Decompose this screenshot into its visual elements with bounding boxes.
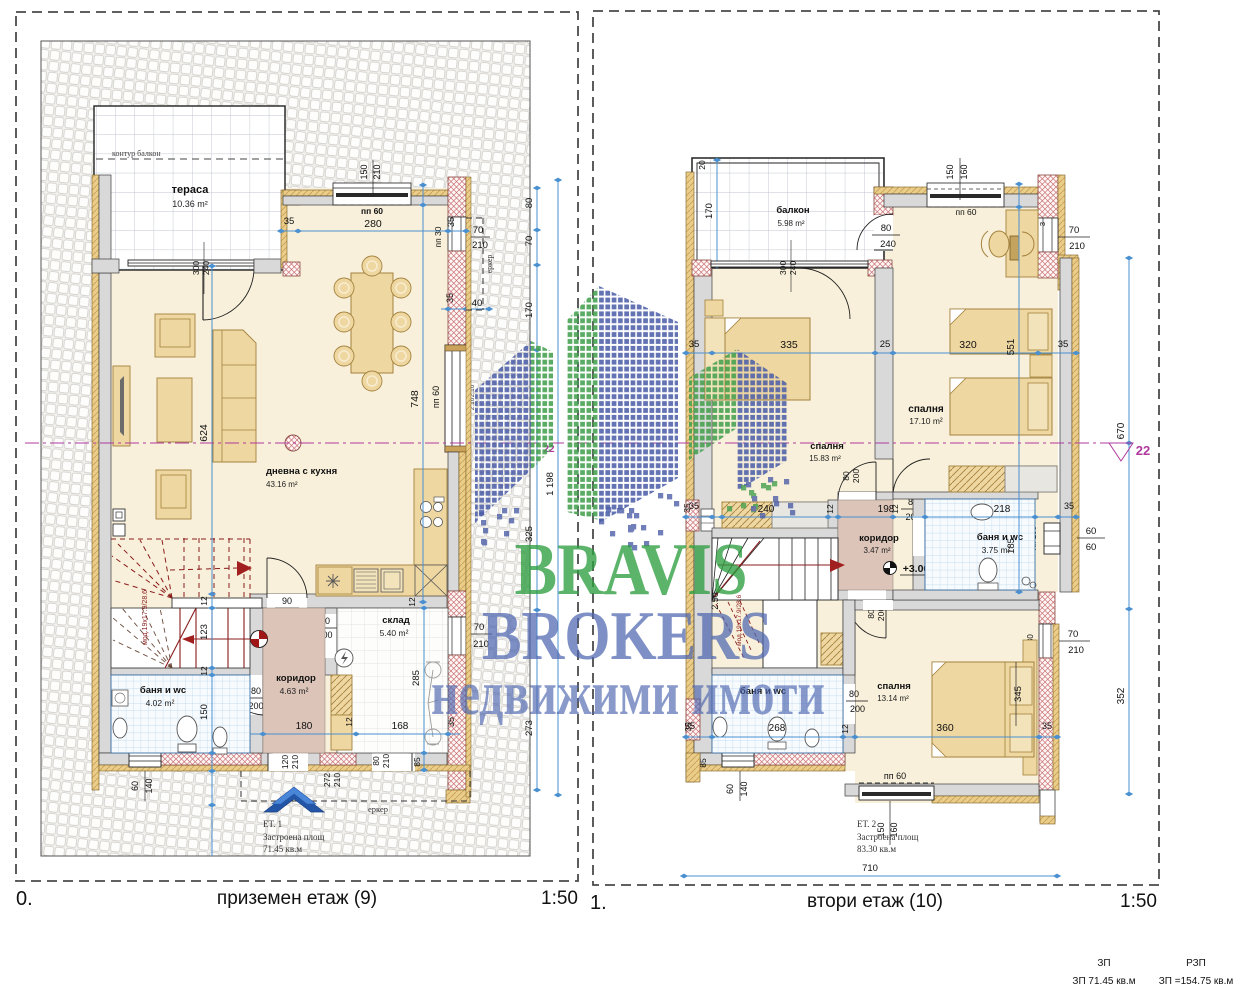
svg-text:40: 40	[472, 298, 483, 309]
svg-text:пп 60: пп 60	[431, 386, 441, 408]
svg-text:360: 360	[936, 722, 954, 734]
svg-text:300: 300	[191, 261, 201, 275]
svg-text:60: 60	[130, 781, 140, 791]
svg-text:80: 80	[251, 686, 261, 696]
svg-text:10.36 m²: 10.36 m²	[172, 199, 208, 209]
svg-text:710: 710	[862, 863, 878, 874]
svg-text:80: 80	[866, 609, 876, 619]
svg-text:352: 352	[1116, 687, 1127, 704]
svg-text:90: 90	[282, 596, 292, 606]
svg-text:12: 12	[199, 596, 209, 606]
svg-text:втори етаж (10): втори етаж (10)	[807, 891, 943, 912]
svg-text:200: 200	[248, 701, 263, 711]
svg-text:12: 12	[344, 717, 354, 727]
svg-text:240: 240	[201, 261, 211, 275]
svg-text:200: 200	[851, 469, 861, 483]
svg-text:70: 70	[524, 236, 535, 247]
svg-text:35: 35	[284, 216, 295, 227]
svg-text:300: 300	[778, 261, 788, 275]
svg-text:мод.19х17.9/28.6: мод.19х17.9/28.6	[142, 590, 149, 645]
svg-text:ЕТ. 1: ЕТ. 1	[263, 819, 282, 829]
svg-text:пп 30: пп 30	[433, 226, 443, 247]
svg-text:280: 280	[364, 218, 382, 230]
svg-text:22: 22	[1136, 443, 1150, 458]
svg-text:пп 60: пп 60	[361, 206, 383, 216]
svg-text:345: 345	[1013, 686, 1024, 702]
svg-text:210: 210	[372, 164, 382, 179]
svg-text:дневна с кухня: дневна с кухня	[266, 466, 337, 477]
svg-text:15.83 m²: 15.83 m²	[809, 454, 841, 463]
svg-text:3.47 m²: 3.47 m²	[863, 546, 890, 555]
svg-text:210: 210	[381, 754, 391, 768]
svg-text:недвижими имоти: недвижими имоти	[431, 660, 825, 728]
svg-text:80: 80	[881, 223, 892, 234]
svg-text:180: 180	[296, 721, 313, 732]
svg-text:210: 210	[1069, 241, 1085, 252]
svg-text:коридор: коридор	[859, 533, 899, 544]
svg-text:60: 60	[1086, 526, 1097, 537]
svg-text:35: 35	[689, 501, 699, 511]
svg-text:70: 70	[473, 225, 484, 236]
svg-text:1:50: 1:50	[1120, 891, 1157, 912]
svg-text:ЗП 71.45 кв.м: ЗП 71.45 кв.м	[1072, 976, 1135, 987]
svg-text:240: 240	[788, 261, 798, 275]
svg-text:1.: 1.	[590, 892, 607, 914]
svg-text:35: 35	[1064, 501, 1074, 511]
svg-text:еркер: еркер	[368, 804, 388, 814]
svg-text:85: 85	[412, 757, 422, 767]
svg-text:Застроена площ: Застроена площ	[263, 832, 325, 842]
svg-text:пп 60: пп 60	[955, 207, 976, 217]
svg-text:35: 35	[1058, 339, 1069, 350]
svg-text:35: 35	[689, 339, 700, 350]
svg-text:коридор: коридор	[276, 673, 316, 684]
svg-text:1:50: 1:50	[541, 888, 578, 909]
svg-text:1 198: 1 198	[545, 472, 556, 496]
svg-text:335: 335	[780, 339, 798, 351]
svg-text:150: 150	[945, 164, 955, 179]
svg-text:185: 185	[1006, 538, 1017, 554]
svg-text:748: 748	[409, 390, 421, 408]
svg-text:ЗП: ЗП	[1097, 958, 1110, 969]
svg-text:70: 70	[1068, 629, 1079, 640]
svg-text:12: 12	[840, 724, 850, 734]
svg-text:60: 60	[1086, 542, 1097, 553]
svg-text:60: 60	[725, 784, 735, 794]
svg-text:140: 140	[144, 778, 154, 793]
svg-text:12: 12	[890, 504, 900, 514]
svg-text:218: 218	[994, 504, 1011, 515]
svg-text:670: 670	[1116, 422, 1127, 439]
svg-text:80: 80	[371, 756, 381, 766]
svg-text:168: 168	[392, 721, 409, 732]
svg-text:170: 170	[704, 203, 715, 219]
svg-text:еркер: еркер	[485, 255, 494, 274]
svg-text:Застроена площ: Застроена площ	[857, 832, 919, 842]
svg-text:0.: 0.	[16, 888, 33, 910]
svg-text:240: 240	[880, 239, 896, 250]
svg-text:140: 140	[739, 781, 749, 796]
svg-text:РЗП: РЗП	[1186, 958, 1206, 969]
svg-text:35: 35	[446, 217, 456, 227]
svg-text:624: 624	[198, 424, 210, 442]
svg-text:спалня: спалня	[908, 404, 944, 415]
svg-text:12: 12	[199, 666, 209, 676]
svg-text:150: 150	[199, 704, 210, 720]
svg-text:210: 210	[332, 773, 342, 787]
svg-text:83.30 кв.м: 83.30 кв.м	[857, 844, 896, 854]
svg-text:210: 210	[1068, 645, 1084, 656]
svg-text:210: 210	[290, 755, 300, 769]
svg-text:320: 320	[959, 339, 977, 351]
svg-text:5.98 m²: 5.98 m²	[777, 219, 804, 228]
svg-text:272: 272	[322, 773, 332, 787]
svg-text:551: 551	[1006, 338, 1017, 355]
svg-text:20: 20	[697, 160, 707, 170]
svg-text:приземен етаж (9): приземен етаж (9)	[217, 888, 377, 909]
svg-text:ЕТ. 2: ЕТ. 2	[857, 819, 876, 829]
svg-text:4.63 m²: 4.63 m²	[280, 686, 309, 696]
svg-text:35: 35	[1042, 721, 1052, 731]
svg-text:200: 200	[850, 704, 865, 714]
svg-text:70: 70	[1069, 225, 1080, 236]
svg-text:спалня: спалня	[877, 681, 911, 692]
svg-text:контур балкон: контур балкон	[112, 149, 161, 158]
svg-text:71.45 кв.м: 71.45 кв.м	[263, 844, 302, 854]
svg-text:160: 160	[959, 164, 969, 179]
svg-text:ЗП =154.75 кв.м: ЗП =154.75 кв.м	[1159, 976, 1234, 987]
svg-text:баня и wc: баня и wc	[140, 685, 186, 696]
svg-text:5.40 m²: 5.40 m²	[380, 628, 409, 638]
svg-text:12: 12	[825, 504, 835, 514]
svg-text:3: 3	[1038, 222, 1047, 226]
svg-text:170: 170	[524, 302, 535, 318]
svg-text:13.14 m²: 13.14 m²	[877, 694, 909, 703]
svg-text:80: 80	[841, 471, 851, 481]
svg-text:тераса: тераса	[172, 184, 210, 196]
svg-text:склад: склад	[382, 615, 410, 626]
svg-text:балкон: балкон	[776, 205, 810, 216]
svg-text:25: 25	[880, 339, 891, 350]
svg-text:пп 60: пп 60	[884, 771, 906, 781]
svg-text:210: 210	[472, 240, 488, 251]
svg-text:80: 80	[524, 198, 535, 209]
svg-text:120: 120	[280, 755, 290, 769]
svg-text:4.02 m²: 4.02 m²	[146, 698, 175, 708]
svg-text:123: 123	[199, 624, 210, 640]
svg-text:43.16 m²: 43.16 m²	[266, 480, 298, 489]
svg-text:35: 35	[445, 293, 455, 303]
svg-text:12: 12	[407, 597, 417, 607]
svg-text:80: 80	[849, 689, 859, 699]
svg-text:150: 150	[359, 164, 369, 179]
svg-text:17.10 m²: 17.10 m²	[909, 416, 943, 426]
svg-text:285: 285	[411, 670, 422, 686]
